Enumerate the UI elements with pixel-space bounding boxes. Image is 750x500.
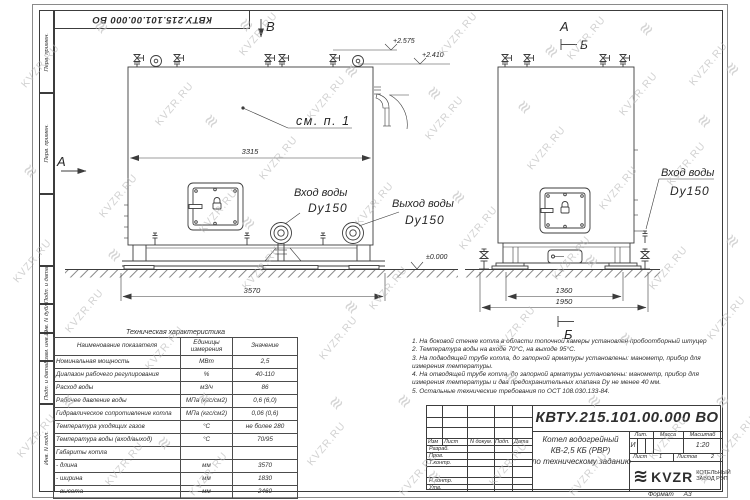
drain-valve-icon	[643, 231, 648, 243]
inlet-dy: Dy150	[670, 184, 710, 198]
section-label-b-bottom: Б	[564, 327, 573, 342]
valve-icon	[134, 55, 144, 68]
view-label-a: А	[559, 19, 569, 34]
door-handle	[541, 209, 553, 213]
elevation-mark-icon	[411, 262, 423, 269]
ground-hatch	[465, 270, 660, 278]
dim-3570: 3570	[244, 286, 262, 295]
nozzle-icon	[151, 56, 162, 67]
valve-icon	[174, 55, 184, 68]
outlet-label: Выход воды	[392, 198, 454, 210]
drawing-sheet: Перв. примен. Перв. примен. Подп. и дата…	[0, 0, 750, 500]
valve-icon	[524, 55, 534, 68]
ground-hatch	[65, 270, 458, 278]
valve-icon	[600, 55, 610, 68]
boiler-base-front	[122, 243, 385, 269]
door-swing-arc	[390, 95, 407, 129]
callout-text: см. п. 1	[296, 114, 351, 128]
side-brackets	[634, 150, 638, 215]
inlet-label: Вход воды	[661, 167, 714, 179]
inlet-label: Вход воды	[294, 187, 347, 199]
view-label-v: В	[266, 19, 275, 34]
valve-icon	[279, 55, 289, 68]
valve-icon	[330, 55, 340, 68]
base-access-panel	[548, 250, 582, 263]
boiler-base-side	[492, 243, 641, 269]
dim-3315: 3315	[242, 147, 260, 156]
side-valve-icon	[640, 249, 650, 269]
inlet-dy: Dy150	[308, 201, 348, 215]
furnace-door-side	[540, 188, 590, 233]
inlet-flange	[271, 223, 292, 244]
boiler-drawing-canvas: В А 3315 см. п. 1 +2.575 +2.410	[0, 0, 750, 500]
boiler-body-front	[128, 67, 373, 245]
side-valve-icon	[479, 249, 489, 269]
valve-icon	[265, 55, 275, 68]
valve-icon	[502, 55, 512, 68]
left-view-boiler: В А 3315 см. п. 1 +2.575 +2.410	[56, 19, 458, 301]
nozzle-icon	[353, 56, 364, 67]
dim-1360: 1360	[556, 286, 574, 295]
outlet-dy: Dy150	[405, 213, 445, 227]
section-label-b-top: Б	[580, 38, 588, 52]
side-brackets	[124, 205, 128, 238]
elev-2575: +2.575	[393, 38, 415, 45]
right-view-boiler: А Б	[465, 19, 714, 342]
elev-2410: +2.410	[422, 52, 444, 59]
valve-icon	[620, 55, 630, 68]
door-handle	[189, 205, 202, 209]
view-label-a-side: А	[56, 154, 66, 169]
elev-0000: ±0.000	[426, 254, 447, 261]
furnace-door-front	[188, 183, 243, 230]
side-hatch-elbow	[374, 87, 409, 129]
dim-1950: 1950	[556, 297, 574, 306]
